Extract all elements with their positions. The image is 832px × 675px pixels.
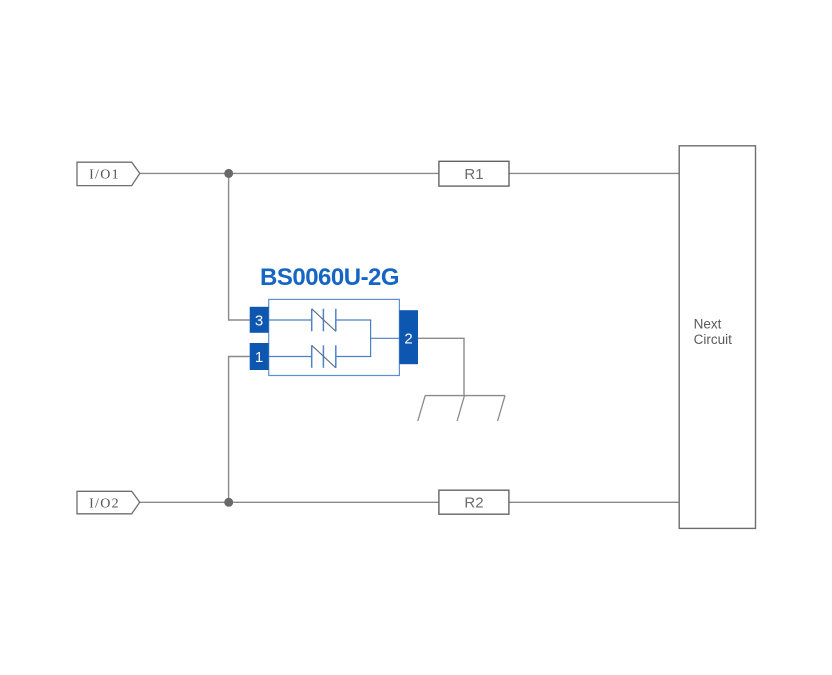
svg-text:R2: R2 [464, 495, 483, 512]
svg-text:3: 3 [255, 313, 263, 330]
svg-text:I/O1: I/O1 [89, 168, 120, 183]
svg-text:Next: Next [694, 316, 722, 331]
svg-text:I/O2: I/O2 [89, 497, 120, 512]
svg-text:1: 1 [255, 349, 263, 366]
svg-text:R1: R1 [464, 166, 483, 183]
svg-text:Circuit: Circuit [694, 332, 733, 347]
svg-text:2: 2 [404, 331, 412, 348]
svg-text:BS0060U-2G: BS0060U-2G [260, 264, 399, 291]
